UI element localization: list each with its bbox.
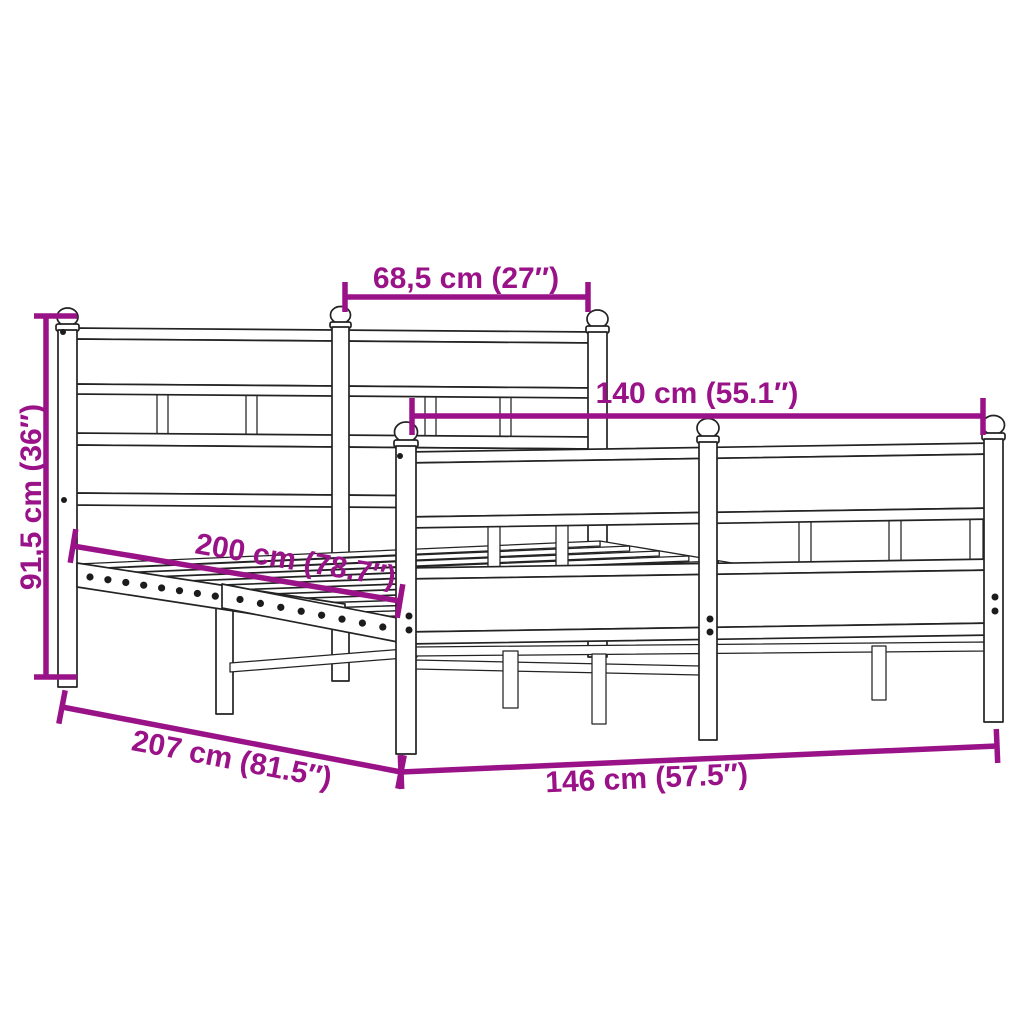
rail-hole — [212, 593, 219, 600]
bolt — [397, 453, 403, 459]
footboard-right-post — [984, 439, 1003, 722]
base-support-leg — [503, 651, 518, 708]
headboard-left-post — [58, 330, 77, 687]
base-stretcher-bar — [415, 660, 700, 675]
rail-hole — [122, 579, 129, 586]
bolt — [60, 329, 66, 335]
bolt — [406, 627, 413, 634]
rail-hole — [257, 600, 264, 607]
bolt — [707, 629, 714, 636]
dimension-label: 91,5 cm (36″) — [15, 404, 48, 590]
bed-frame-dimension-diagram: 68,5 cm (27″) 140 cm (55.1″) 91,5 cm (36… — [0, 0, 1024, 1024]
bolt — [61, 497, 67, 503]
footboard-bar — [488, 521, 500, 571]
base-support-leg — [872, 646, 886, 700]
rail-hole — [86, 573, 93, 580]
bolt — [406, 613, 413, 620]
footboard-finial — [697, 419, 719, 438]
rail-hole — [176, 587, 183, 594]
rail-hole — [277, 604, 284, 611]
base-support-leg — [216, 600, 233, 714]
footboard-center-post — [699, 442, 717, 740]
rail-hole — [379, 623, 386, 630]
rail-hole — [318, 612, 325, 619]
diagram-canvas: 68,5 cm (27″) 140 cm (55.1″) 91,5 cm (36… — [0, 0, 1024, 1024]
dimension-headboard-section-width: 68,5 cm (27″) — [345, 262, 588, 312]
dimension-tick — [400, 755, 401, 789]
rail-hole — [104, 576, 111, 583]
footboard-bar — [889, 515, 901, 565]
rail-hole — [158, 584, 165, 591]
rail-hole — [236, 596, 243, 603]
footboard-bar — [799, 516, 811, 566]
dimension-tick — [59, 690, 65, 723]
bolt — [707, 616, 714, 623]
footboard-bar — [556, 520, 568, 570]
dimension-tick — [996, 729, 997, 763]
bolt — [992, 608, 999, 615]
rail-hole — [194, 590, 201, 597]
base-stretcher-bar — [230, 648, 417, 672]
footboard — [394, 416, 1005, 755]
footboard-finial — [983, 416, 1005, 435]
dimension-label: 68,5 cm (27″) — [373, 262, 559, 295]
rail-hole — [298, 608, 305, 615]
bolt — [992, 594, 999, 601]
rail-hole — [359, 619, 366, 626]
dimension-label: 140 cm (55.1″) — [596, 377, 799, 410]
rail-hole — [140, 582, 147, 589]
rail-hole — [338, 616, 345, 623]
base-support-leg — [592, 654, 606, 724]
dimension-label: 207 cm (81.5″) — [129, 724, 334, 795]
